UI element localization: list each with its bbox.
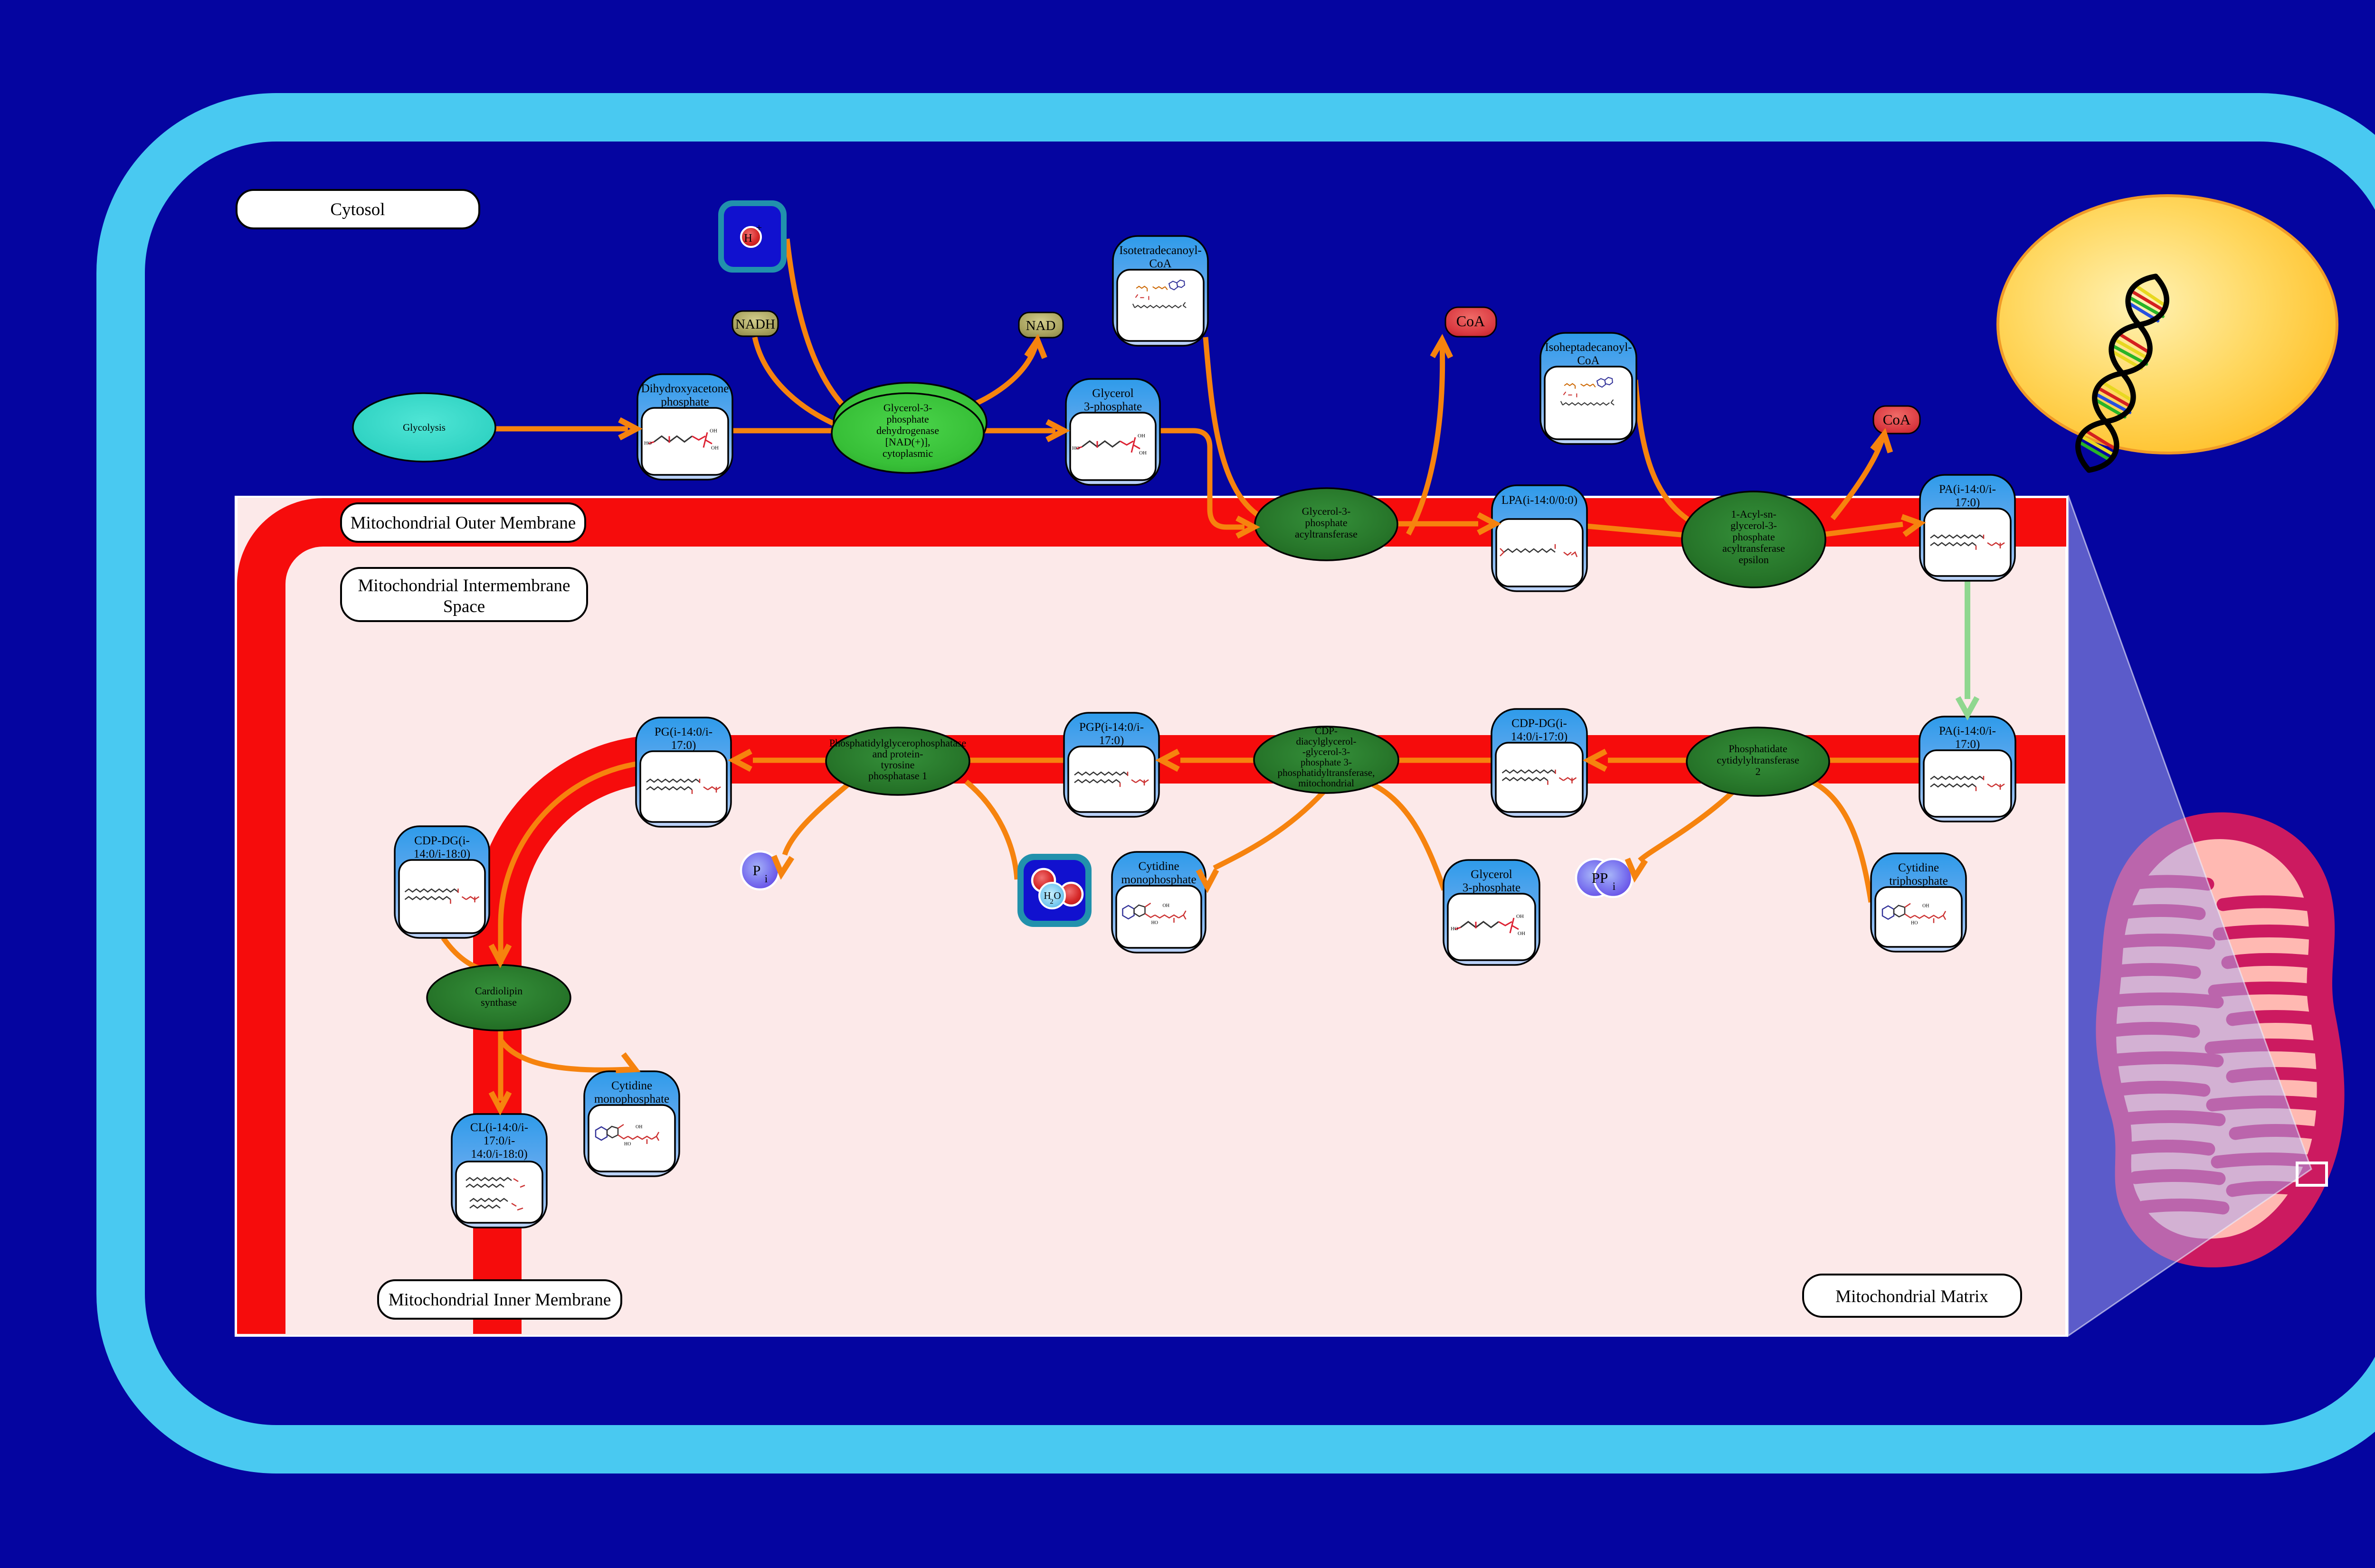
svg-text:and protein-: and protein- (873, 748, 923, 760)
svg-text:tyrosine: tyrosine (881, 759, 915, 771)
svg-text:PG(i-14:0/i-: PG(i-14:0/i- (655, 726, 712, 738)
svg-text:monophosphate: monophosphate (594, 1093, 669, 1105)
svg-text:-glycerol-3-: -glycerol-3- (1302, 746, 1350, 757)
svg-text:cytoplasmic: cytoplasmic (883, 447, 933, 459)
svg-text:HO: HO (644, 440, 652, 446)
svg-text:17:0/i-: 17:0/i- (484, 1134, 515, 1147)
svg-text:PA(i-14:0/i-: PA(i-14:0/i- (1939, 725, 1996, 737)
svg-text:monophosphate: monophosphate (1121, 873, 1196, 886)
svg-text:acyltransferase: acyltransferase (1295, 528, 1358, 540)
svg-text:acyltransferase: acyltransferase (1722, 542, 1785, 554)
svg-text:OH: OH (636, 1124, 642, 1130)
svg-text:OH: OH (1922, 904, 1929, 909)
svg-text:HO: HO (1072, 445, 1080, 451)
svg-text:Cytidine: Cytidine (1138, 860, 1179, 873)
svg-text:OH: OH (1163, 903, 1169, 908)
svg-text:PP: PP (1592, 869, 1608, 886)
svg-text:phosphate: phosphate (1732, 531, 1775, 543)
svg-text:3-phosphate: 3-phosphate (1084, 400, 1142, 413)
svg-text:2: 2 (1756, 765, 1761, 777)
svg-text:14:0/i-18:0): 14:0/i-18:0) (471, 1148, 527, 1161)
svg-text:17:0): 17:0) (671, 739, 696, 752)
svg-text:17:0): 17:0) (1955, 738, 1980, 751)
svg-text:14:0/i-18:0): 14:0/i-18:0) (414, 848, 470, 860)
svg-text:3-phosphate: 3-phosphate (1463, 881, 1520, 894)
svg-text:CDP-: CDP- (1315, 725, 1338, 737)
svg-text:OH: OH (1518, 931, 1525, 936)
svg-text:Mitochondrial Matrix: Mitochondrial Matrix (1835, 1287, 1988, 1306)
svg-text:i: i (765, 873, 768, 885)
svg-text:HO: HO (1451, 926, 1458, 932)
svg-text:NAD: NAD (1026, 318, 1056, 333)
svg-text:Isotetradecanoyl-: Isotetradecanoyl- (1119, 244, 1202, 257)
svg-text:OH: OH (1516, 914, 1524, 919)
svg-text:mitochondrial: mitochondrial (1298, 777, 1354, 789)
svg-text:NADH: NADH (735, 317, 775, 332)
svg-text:+: + (756, 222, 762, 234)
svg-text:CDP-DG(i-: CDP-DG(i- (414, 834, 470, 847)
svg-text:CoA: CoA (1456, 312, 1485, 330)
svg-text:1-Acyl-sn-: 1-Acyl-sn- (1731, 508, 1776, 520)
svg-text:Mitochondrial Intermembrane: Mitochondrial Intermembrane (358, 576, 570, 595)
svg-text:OH: OH (1139, 450, 1147, 456)
svg-text:phosphate: phosphate (886, 413, 929, 425)
svg-text:OH: OH (710, 428, 717, 434)
svg-text:phosphate: phosphate (1305, 517, 1347, 529)
svg-text:Glycolysis: Glycolysis (403, 422, 446, 433)
svg-text:CoA: CoA (1577, 354, 1599, 367)
svg-text:Glycerol-3-: Glycerol-3- (1302, 505, 1351, 517)
svg-text:Mitochondrial Inner Membrane: Mitochondrial Inner Membrane (389, 1290, 611, 1310)
svg-text:phosphatidyltransferase,: phosphatidyltransferase, (1278, 767, 1375, 778)
svg-text:OH: OH (711, 445, 719, 451)
svg-text:CoA: CoA (1149, 257, 1171, 270)
svg-text:epsilon: epsilon (1738, 554, 1769, 566)
svg-text:synthase: synthase (481, 996, 517, 1008)
svg-text:Space: Space (443, 597, 485, 616)
svg-text:phosphate: phosphate (661, 396, 709, 408)
svg-text:Cardiolipin: Cardiolipin (475, 985, 522, 997)
svg-text:O: O (1054, 890, 1061, 901)
svg-text:phosphatase 1: phosphatase 1 (868, 770, 927, 782)
svg-text:Dihydroxyacetone: Dihydroxyacetone (641, 382, 729, 395)
svg-text:HO: HO (624, 1142, 631, 1147)
svg-text:OH: OH (1138, 433, 1145, 439)
svg-text:Phosphatidate: Phosphatidate (1729, 743, 1787, 755)
svg-text:H: H (744, 232, 752, 245)
svg-text:Glycerol: Glycerol (1471, 868, 1512, 881)
svg-text:Glycerol: Glycerol (1092, 387, 1134, 400)
svg-text:Phosphatidylglycerophosphatase: Phosphatidylglycerophosphatase (829, 737, 966, 749)
svg-text:i: i (1613, 880, 1615, 892)
svg-text:PGP(i-14:0/i-: PGP(i-14:0/i- (1079, 721, 1144, 734)
svg-text:Isoheptadecanoyl-: Isoheptadecanoyl- (1545, 341, 1632, 354)
svg-text:PA(i-14:0/i-: PA(i-14:0/i- (1939, 483, 1996, 496)
svg-text:Cytosol: Cytosol (330, 200, 385, 219)
svg-text:2: 2 (1050, 898, 1054, 906)
svg-text:[NAD(+)],: [NAD(+)], (885, 436, 931, 448)
svg-text:Cytidine: Cytidine (1898, 861, 1939, 874)
svg-text:P: P (753, 863, 761, 878)
svg-text:Cytidine: Cytidine (611, 1079, 652, 1092)
svg-text:phosphate 3-: phosphate 3- (1301, 756, 1352, 768)
svg-text:17:0): 17:0) (1955, 496, 1980, 509)
svg-text:CDP-DG(i-: CDP-DG(i- (1511, 717, 1567, 730)
svg-text:CoA: CoA (1883, 411, 1911, 428)
svg-text:triphosphate: triphosphate (1889, 875, 1948, 888)
svg-text:Glycerol-3-: Glycerol-3- (883, 402, 932, 414)
svg-text:dehydrogenase: dehydrogenase (876, 425, 939, 436)
svg-text:cytidylyltransferase: cytidylyltransferase (1717, 754, 1799, 766)
svg-text:glycerol-3-: glycerol-3- (1730, 520, 1777, 531)
svg-text:diacylglycerol-: diacylglycerol- (1296, 736, 1356, 747)
svg-text:HO: HO (1151, 920, 1158, 926)
svg-text:CL(i-14:0/i-: CL(i-14:0/i- (470, 1121, 528, 1134)
svg-text:LPA(i-14:0/0:0): LPA(i-14:0/0:0) (1501, 494, 1577, 507)
svg-text:17:0): 17:0) (1099, 734, 1124, 747)
svg-text:HO: HO (1911, 921, 1918, 926)
svg-text:14:0/i-17:0): 14:0/i-17:0) (1511, 730, 1567, 743)
svg-text:Mitochondrial Outer Membrane: Mitochondrial Outer Membrane (351, 513, 576, 533)
